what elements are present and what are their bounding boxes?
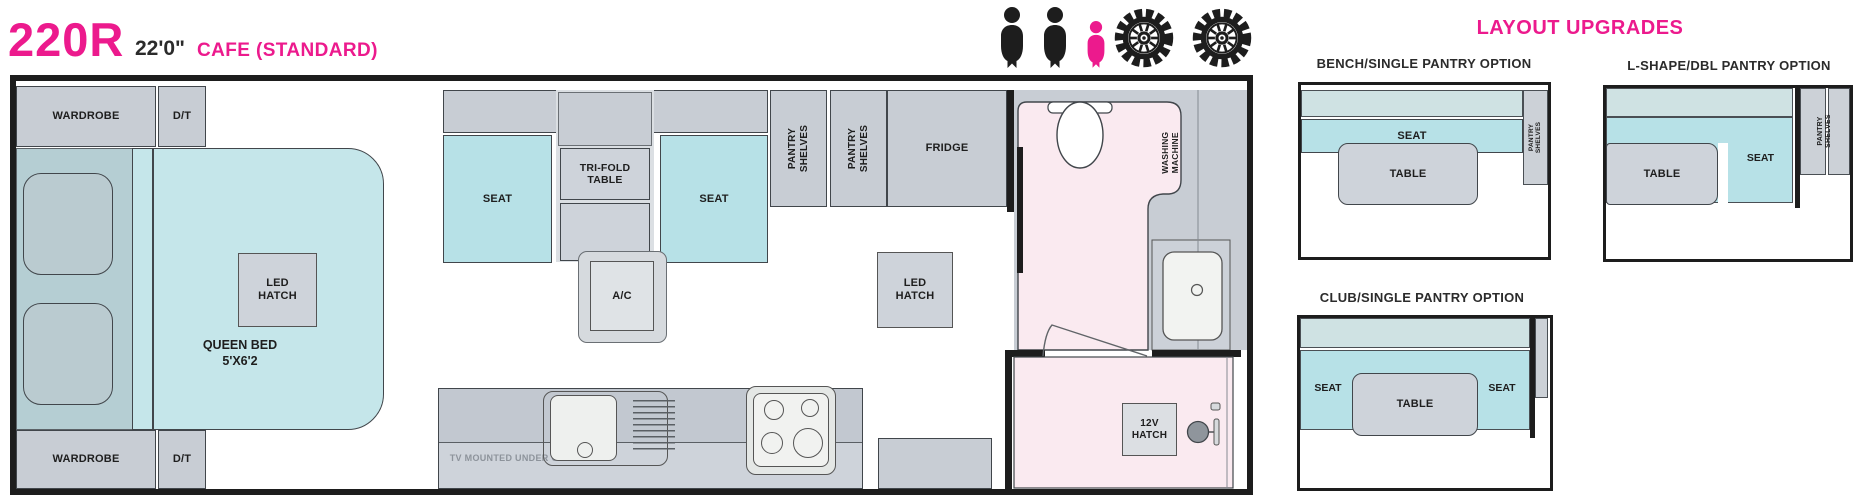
pantry-shelves-2: PANTRY SHELVES	[830, 90, 887, 207]
wall-segment	[1005, 350, 1012, 489]
entry-step-cabinet	[878, 438, 992, 489]
led-hatch-bedroom-label: LED HATCH	[255, 277, 301, 302]
bench-seat-label: SEAT	[1397, 130, 1426, 143]
bathroom-door-bar	[1017, 147, 1023, 273]
cafe-seat-left: SEAT	[443, 135, 552, 263]
stove	[746, 386, 836, 475]
model-title: 220R	[8, 12, 124, 67]
club-pantry-column	[1535, 318, 1548, 398]
lshape-pantry-label: PANTRY SHELVES	[1817, 108, 1833, 156]
adult-icon	[995, 6, 1029, 68]
trifold-table-label: TRI-FOLD TABLE	[574, 162, 636, 186]
fridge-label: FRIDGE	[926, 142, 969, 155]
club-seat-left-label: SEAT	[1302, 382, 1354, 394]
wheel-icon	[1113, 7, 1175, 69]
ac-inner: A/C	[590, 261, 654, 331]
layout-upgrades-title: LAYOUT UPGRADES	[1390, 17, 1770, 40]
main-floorplan: WARDROBE D/T WARDROBE D/T LED HATCH QUEE…	[10, 75, 1253, 495]
club-backrest	[1300, 318, 1530, 348]
club-table-label: TABLE	[1397, 398, 1434, 411]
club-table: TABLE	[1352, 373, 1478, 436]
bed-frame-line	[152, 148, 154, 430]
wardrobe-bottom-label: WARDROBE	[53, 453, 120, 466]
pantry-shelves-1-label: PANTRY SHELVES	[787, 121, 810, 176]
lshape-table-label: TABLE	[1644, 168, 1681, 181]
brochure-floorplan-page: 220R 22'0" CAFE (STANDARD) LAYOUT UPGRAD…	[0, 0, 1862, 497]
cafe-seat-right-label: SEAT	[699, 193, 728, 206]
ac-label: A/C	[612, 290, 632, 303]
lshape-option-panel: TABLE SEAT PANTRY SHELVES	[1603, 85, 1853, 262]
vanity-sink	[1163, 252, 1222, 340]
lshape-pantry-label-wrap: PANTRY SHELVES	[1800, 88, 1850, 175]
pillow	[23, 303, 113, 405]
bench-pantry-label: PANTRY SHELVES	[1528, 122, 1543, 153]
club-option-panel: SEAT SEAT TABLE	[1297, 315, 1553, 491]
kitchen-bench: TV MOUNTED UNDER O/H	[438, 388, 863, 489]
dt-bottom-label: D/T	[173, 453, 191, 466]
trifold-table-top-section	[558, 92, 652, 146]
variant-label: CAFE (STANDARD)	[197, 40, 378, 62]
trifold-table: TRI-FOLD TABLE	[560, 148, 650, 200]
shower-tap	[1211, 403, 1220, 410]
toilet-bowl	[1057, 102, 1103, 168]
pillow	[23, 173, 113, 275]
washing-machine: WASHING MACHINE	[1142, 124, 1200, 182]
club-seat-right-label: SEAT	[1476, 382, 1528, 394]
bench-table-label: TABLE	[1390, 168, 1427, 181]
pantry-shelves-2-label: PANTRY SHELVES	[847, 121, 870, 176]
stove-top	[753, 393, 829, 467]
length-label: 22'0"	[135, 37, 185, 61]
wardrobe-top: WARDROBE	[16, 86, 156, 147]
bench-table: TABLE	[1338, 143, 1478, 205]
queen-bed-name: QUEEN BED	[145, 338, 335, 354]
queen-bed-size: 5'X6'2	[145, 354, 335, 370]
offroad-wheel-icons	[1113, 7, 1253, 74]
wardrobe-top-label: WARDROBE	[53, 110, 120, 123]
shower-rail	[1214, 419, 1219, 445]
fridge: FRIDGE	[887, 90, 1007, 207]
ac-unit: A/C	[578, 251, 667, 343]
burner	[761, 432, 783, 454]
led-hatch-hallway: LED HATCH	[877, 252, 953, 328]
burner	[801, 399, 819, 417]
burner	[793, 428, 823, 458]
adult-icon	[1038, 6, 1072, 68]
cafe-seat-left-label: SEAT	[483, 193, 512, 206]
sink-drainer-ribs	[633, 400, 675, 454]
wardrobe-bottom: WARDROBE	[16, 430, 156, 489]
shower-head	[1188, 422, 1209, 443]
dt-bottom: D/T	[158, 430, 206, 489]
club-option-title: CLUB/SINGLE PANTRY OPTION	[1297, 290, 1547, 305]
bench-pantry-column: PANTRY SHELVES	[1523, 90, 1548, 185]
occupancy-icons	[995, 6, 1109, 73]
dt-top-label: D/T	[173, 110, 191, 123]
dt-top: D/T	[158, 86, 206, 147]
twelve-v-hatch: 12V HATCH	[1122, 403, 1177, 456]
cafe-seat-right: SEAT	[660, 135, 768, 263]
led-hatch-bedroom: LED HATCH	[238, 253, 317, 327]
twelve-v-hatch-label: 12V HATCH	[1130, 418, 1170, 441]
wheel-icon	[1191, 7, 1253, 69]
washing-machine-label: WASHING MACHINE	[1161, 127, 1181, 179]
child-icon	[1083, 20, 1109, 68]
lshape-table: TABLE	[1606, 143, 1718, 205]
bench-backrest	[1301, 90, 1523, 117]
sink-drain	[577, 442, 593, 458]
lshape-seat-label: SEAT	[1728, 152, 1793, 164]
lshape-seat-notch	[1718, 143, 1728, 203]
led-hatch-hallway-label: LED HATCH	[892, 277, 938, 302]
queen-bed-label: QUEEN BED 5'X6'2	[145, 338, 335, 369]
burner	[764, 400, 784, 420]
bench-option-title: BENCH/SINGLE PANTRY OPTION	[1297, 56, 1551, 71]
lshape-option-title: L-SHAPE/DBL PANTRY OPTION	[1600, 58, 1858, 73]
lshape-backrest	[1606, 88, 1793, 117]
wall-segment	[1152, 350, 1241, 357]
pantry-shelves-1: PANTRY SHELVES	[770, 90, 827, 207]
bench-option-panel: SEAT PANTRY SHELVES TABLE	[1298, 82, 1551, 260]
kitchen-sink-unit	[543, 391, 668, 466]
kitchen-sink-basin	[550, 395, 617, 461]
